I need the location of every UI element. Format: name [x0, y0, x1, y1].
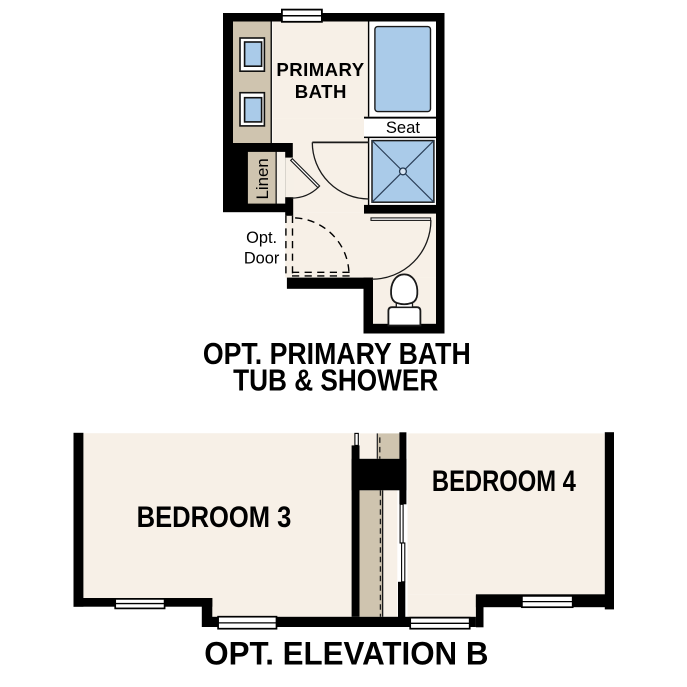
svg-text:Linen: Linen [253, 158, 272, 199]
svg-text:Opt.: Opt. [246, 229, 277, 247]
svg-text:TUB & SHOWER: TUB & SHOWER [233, 364, 439, 398]
svg-text:BATH: BATH [295, 81, 347, 102]
svg-text:BEDROOM 4: BEDROOM 4 [432, 465, 576, 498]
svg-text:Seat: Seat [386, 118, 421, 137]
svg-text:OPT. ELEVATION B: OPT. ELEVATION B [204, 635, 488, 671]
svg-text:PRIMARY: PRIMARY [276, 59, 364, 80]
svg-text:Door: Door [244, 250, 280, 268]
svg-text:BEDROOM 3: BEDROOM 3 [137, 500, 292, 533]
